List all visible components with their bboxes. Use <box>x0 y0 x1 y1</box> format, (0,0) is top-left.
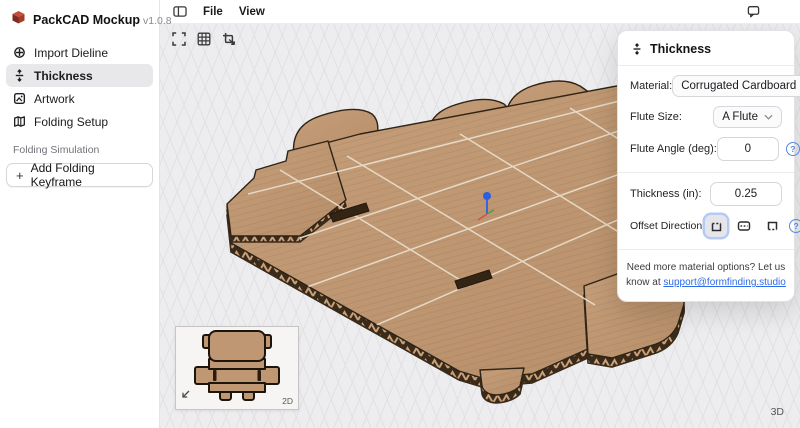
sidebar-item-import-dieline[interactable]: Import Dieline <box>6 41 153 64</box>
brand: PackCAD Mockupv1.0.8 <box>0 0 159 39</box>
flute-angle-row: Flute Angle (deg): ? <box>618 137 794 161</box>
2d-preview-inset[interactable]: 2D <box>175 326 299 410</box>
panel-title: Thickness <box>650 42 711 56</box>
flute-size-label: Flute Size: <box>630 111 682 123</box>
offset-up-icon <box>710 220 723 233</box>
flute-angle-label: Flute Angle (deg): <box>630 143 717 155</box>
help-icon[interactable]: ? <box>786 142 800 156</box>
add-folding-keyframe-button[interactable]: + Add Folding Keyframe <box>6 163 153 187</box>
sidebar-item-folding-setup[interactable]: Folding Setup <box>6 110 153 133</box>
chevron-down-icon <box>764 114 773 120</box>
import-dieline-icon <box>13 46 26 59</box>
plus-icon: + <box>16 169 24 182</box>
support-email-link[interactable]: support@formfinding.studio <box>663 277 785 288</box>
material-row: Material: Corrugated Cardboard <box>618 75 794 97</box>
comment-bubble-icon[interactable] <box>747 5 760 18</box>
panel-note: Need more material options? Let us know … <box>618 250 794 297</box>
viewport-toolbar <box>172 32 236 46</box>
note-line2: know at <box>626 277 663 288</box>
flute-size-select[interactable]: A Flute <box>713 106 782 128</box>
menubar: File View A <box>160 0 800 24</box>
sidebar: PackCAD Mockupv1.0.8 Import Dieline Thic… <box>0 0 160 428</box>
thickness-panel: Thickness Material: Corrugated Cardboard… <box>617 30 795 302</box>
sidebar-item-artwork[interactable]: Artwork <box>6 87 153 110</box>
folding-setup-icon <box>13 115 26 128</box>
thickness-icon <box>13 69 26 82</box>
sidebar-nav: Import Dieline Thickness Artwork Folding… <box>0 39 159 133</box>
note-line1: Need more material options? Let us <box>627 262 785 273</box>
offset-direction-label: Offset Direction: <box>630 220 705 232</box>
offset-center-icon <box>737 220 751 232</box>
flute-size-value: A Flute <box>722 111 758 123</box>
menu-file[interactable]: File <box>203 6 223 18</box>
flute-size-row: Flute Size: A Flute <box>618 106 794 128</box>
material-select[interactable]: Corrugated Cardboard <box>672 75 800 97</box>
sidebar-toggle-icon[interactable] <box>173 5 187 18</box>
app-window: PackCAD Mockupv1.0.8 Import Dieline Thic… <box>0 0 800 428</box>
viewport-3d-label: 3D <box>771 406 784 418</box>
app-title: PackCAD Mockupv1.0.8 <box>33 13 172 27</box>
artwork-icon <box>13 92 26 105</box>
flute-angle-input[interactable] <box>717 137 779 161</box>
divider <box>618 65 794 66</box>
fit-view-icon[interactable] <box>172 32 186 46</box>
divider <box>618 172 794 173</box>
sidebar-item-label: Artwork <box>34 92 75 106</box>
thickness-icon <box>631 43 643 55</box>
sidebar-item-thickness[interactable]: Thickness <box>6 64 153 87</box>
collapse-arrow-icon[interactable] <box>180 387 191 405</box>
offset-up-button[interactable] <box>705 215 727 237</box>
offset-down-button[interactable] <box>761 215 783 237</box>
app-version: v1.0.8 <box>143 15 172 27</box>
sidebar-item-label: Folding Setup <box>34 115 108 129</box>
menu-view[interactable]: View <box>239 6 265 18</box>
offset-down-icon <box>766 220 779 233</box>
thickness-row: Thickness (in): <box>618 182 794 206</box>
3d-viewport[interactable]: 2D 3D Thickness Material: Corrugated Car… <box>160 24 800 428</box>
sidebar-item-label: Import Dieline <box>34 46 108 60</box>
panel-header: Thickness <box>618 31 794 65</box>
offset-direction-row: Offset Direction: ? <box>618 215 794 237</box>
dieline-2d-preview <box>176 327 298 409</box>
offset-center-button[interactable] <box>733 215 755 237</box>
crop-transform-icon[interactable] <box>222 32 236 46</box>
avatar[interactable]: A <box>771 3 788 20</box>
inset-2d-label: 2D <box>282 396 293 406</box>
material-value: Corrugated Cardboard <box>681 80 796 92</box>
sidebar-item-label: Thickness <box>34 69 93 83</box>
package-box-icon <box>11 10 26 30</box>
thickness-label: Thickness (in): <box>630 188 702 200</box>
thickness-input[interactable] <box>710 182 782 206</box>
grid-icon[interactable] <box>197 32 211 46</box>
topbar-right: A <box>747 3 800 20</box>
sidebar-section-label: Folding Simulation <box>0 133 159 163</box>
material-label: Material: <box>630 80 672 92</box>
add-folding-keyframe-label: Add Folding Keyframe <box>31 161 143 189</box>
help-icon[interactable]: ? <box>789 219 800 233</box>
